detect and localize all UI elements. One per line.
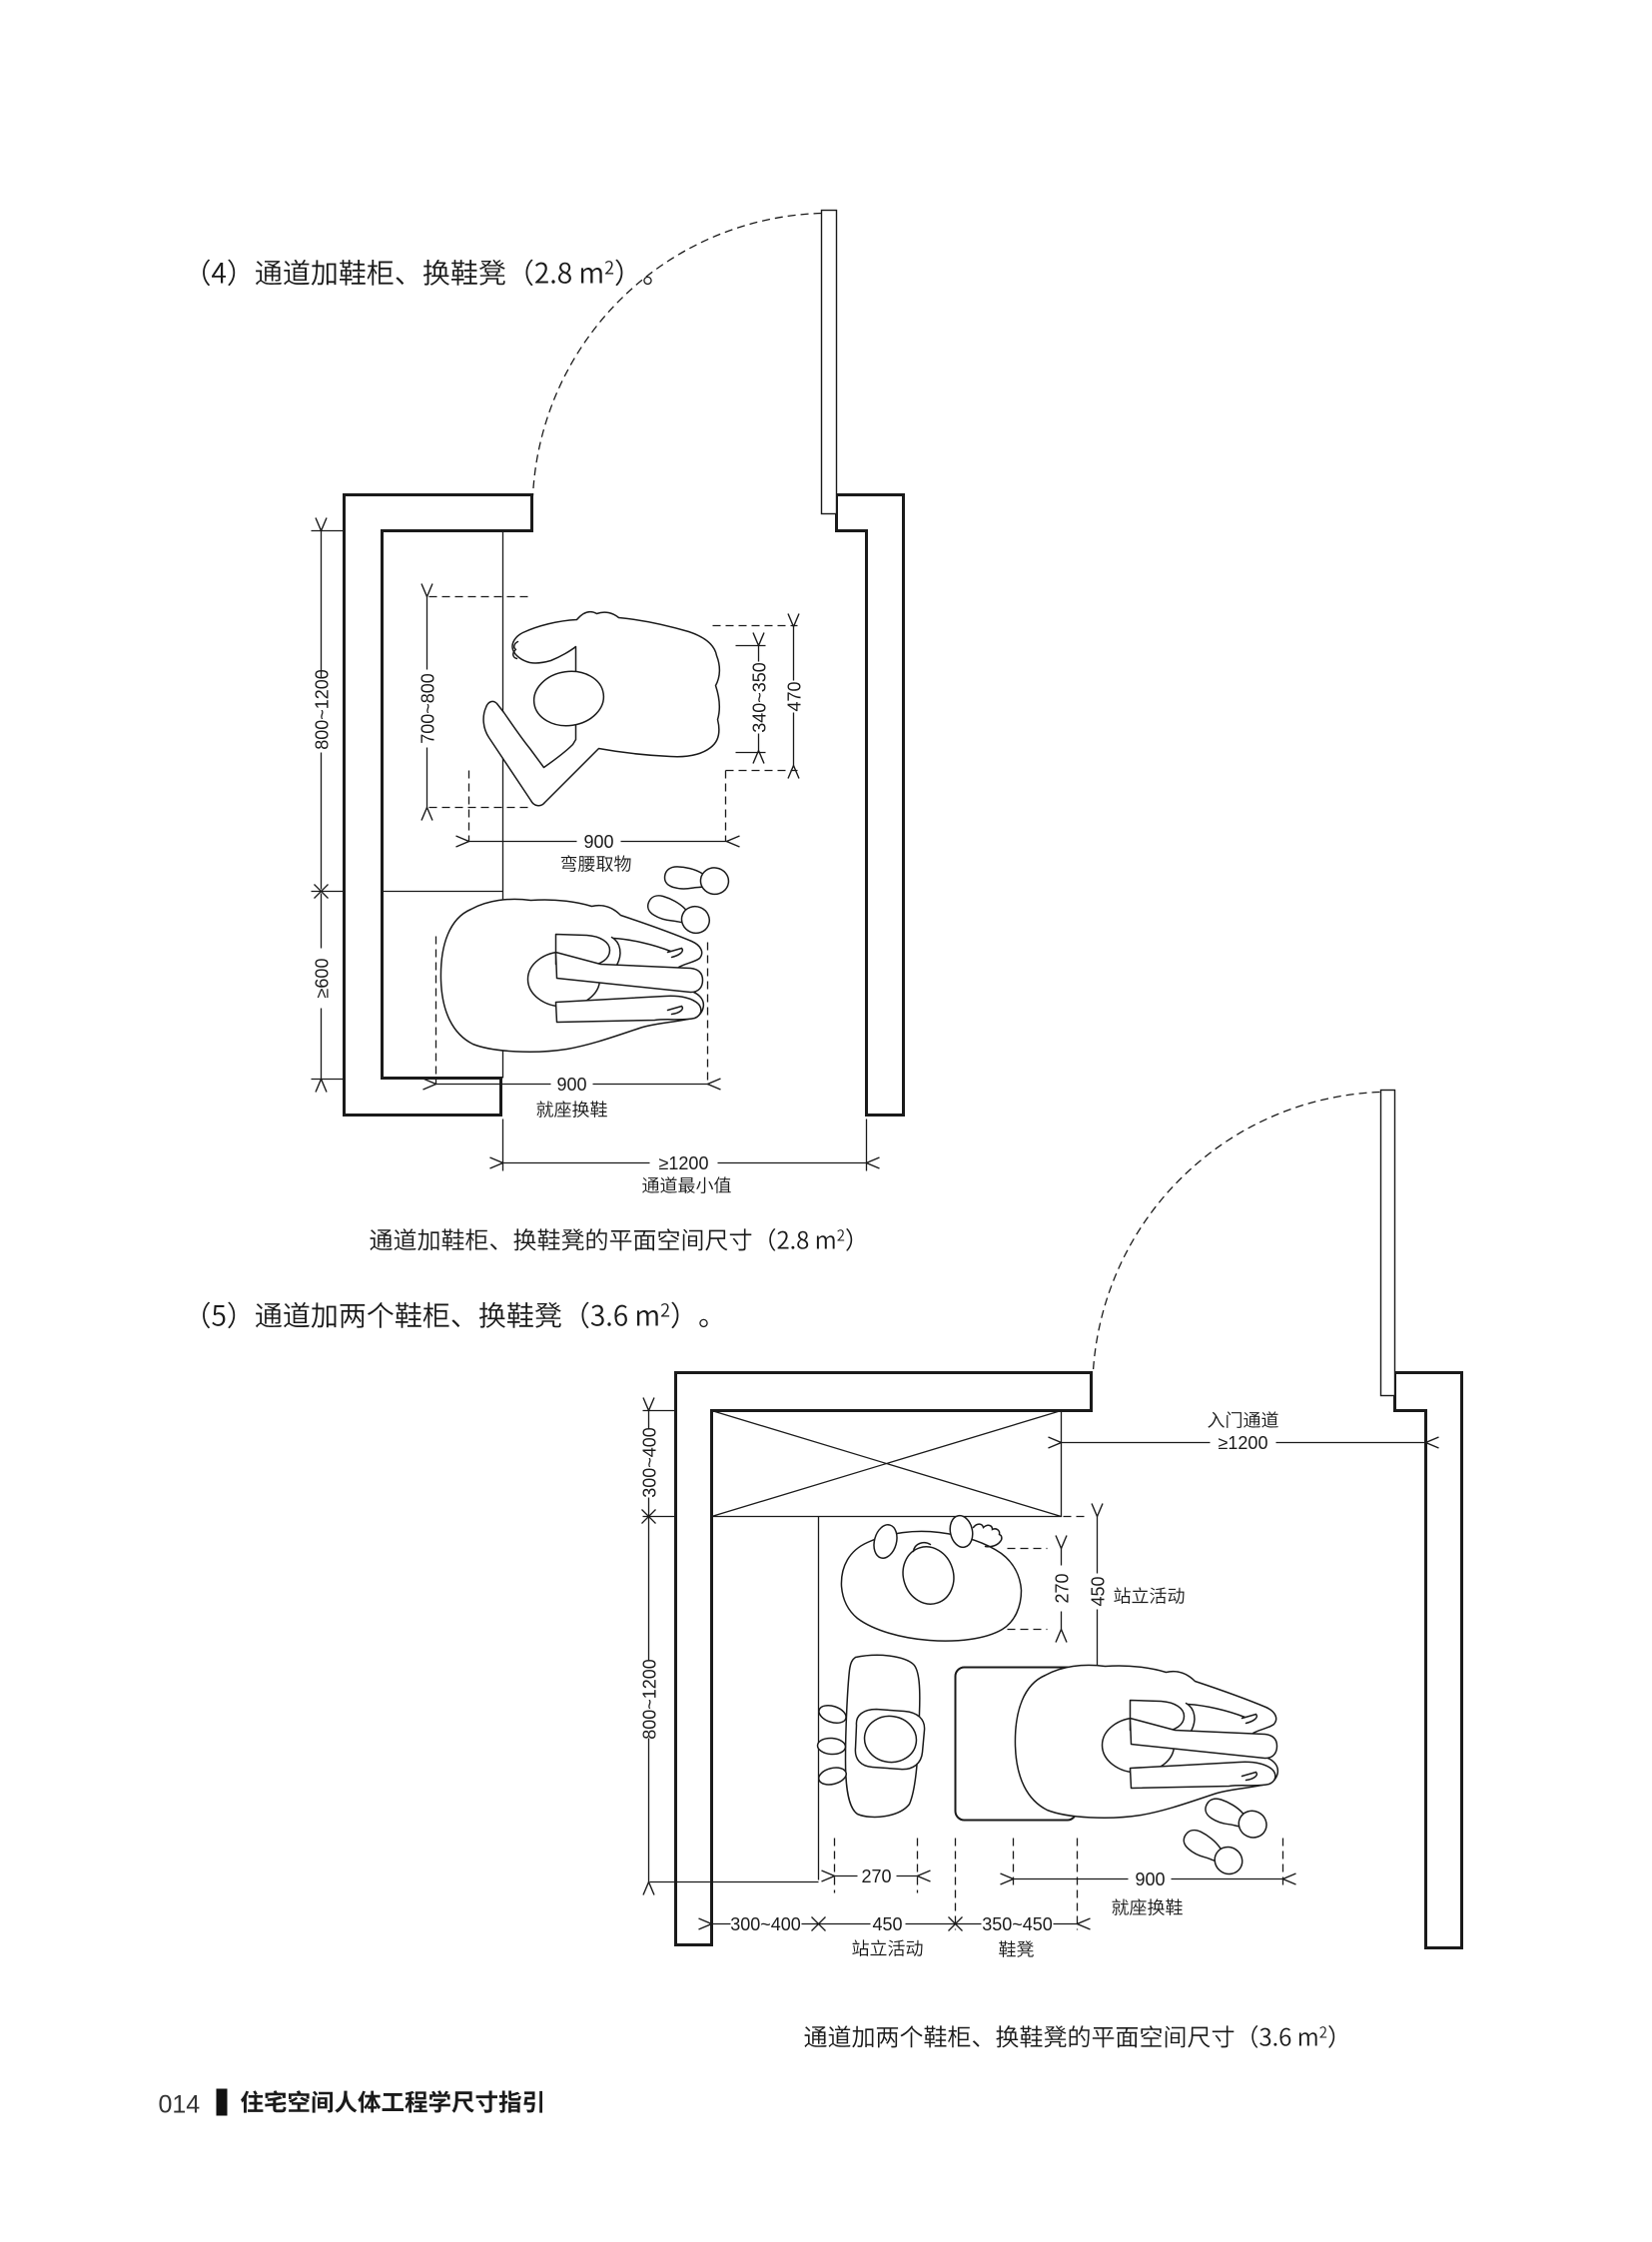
svg-text:340~350: 340~350: [750, 662, 770, 733]
svg-text:≥1200: ≥1200: [659, 1153, 709, 1173]
svg-text:900: 900: [1135, 1869, 1165, 1889]
svg-text:700~800: 700~800: [418, 673, 438, 744]
svg-text:350~450: 350~450: [982, 1914, 1053, 1934]
svg-text:014: 014: [159, 2091, 201, 2119]
svg-text:800~1200: 800~1200: [640, 1659, 660, 1740]
svg-text:300~400: 300~400: [730, 1914, 801, 1934]
svg-text:800~1200: 800~1200: [313, 669, 333, 750]
svg-text:470: 470: [785, 681, 805, 711]
svg-text:900: 900: [583, 832, 613, 852]
svg-text:900: 900: [556, 1075, 586, 1095]
svg-text:450: 450: [1089, 1576, 1109, 1606]
svg-text:270: 270: [1053, 1573, 1073, 1603]
svg-text:≥1200: ≥1200: [1219, 1433, 1268, 1453]
svg-text:270: 270: [861, 1867, 891, 1886]
svg-text:450: 450: [872, 1914, 902, 1934]
svg-text:300~400: 300~400: [640, 1427, 660, 1498]
svg-text:≥600: ≥600: [313, 959, 333, 999]
